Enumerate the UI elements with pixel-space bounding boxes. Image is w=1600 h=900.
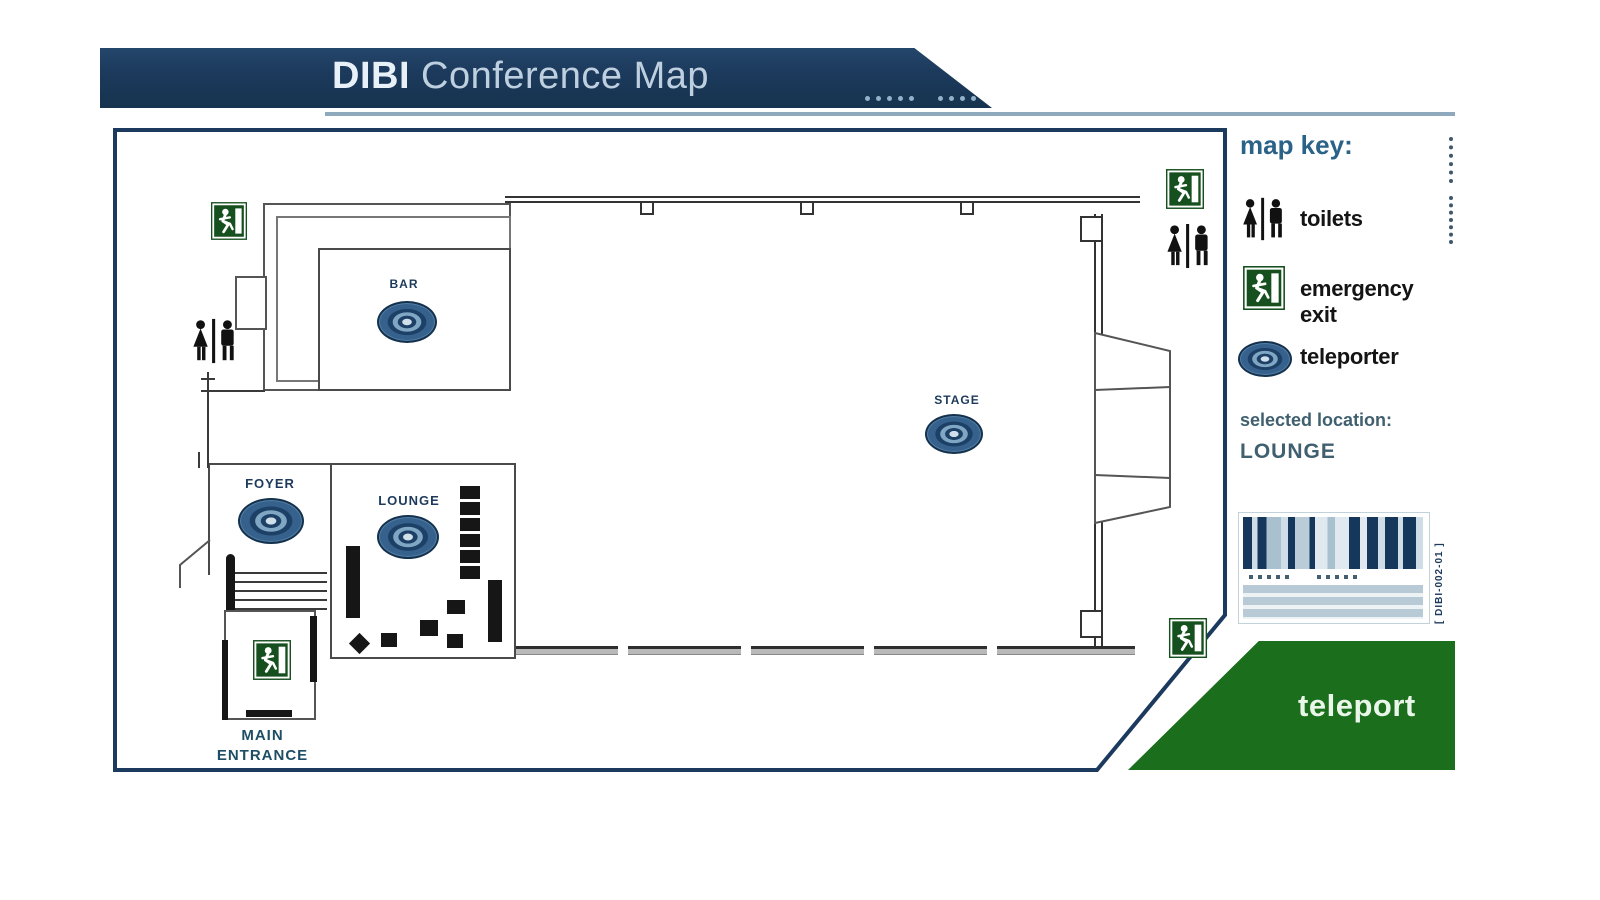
emergency-exit-icon [1168,618,1208,658]
room-label-stage: STAGE [922,393,992,407]
teleporter-foyer[interactable] [238,498,304,544]
wall-segment [751,646,864,655]
barcode-dots [1249,575,1289,579]
wall-segment [505,646,618,655]
furniture [488,580,502,642]
door-notch [960,203,974,215]
furniture [346,546,360,618]
furniture [460,518,480,531]
toilets-icon [1164,224,1212,268]
selected-location-label: selected location: [1240,410,1392,431]
room-label-foyer: FOYER [238,476,302,491]
emergency-exit-icon [253,640,291,680]
wall [201,390,265,392]
door-notch [640,203,654,215]
door-notch [800,203,814,215]
furniture [460,550,480,563]
wall [207,372,209,468]
teleporter-stage[interactable] [925,414,983,454]
emergency-exit-icon [211,200,247,242]
room-label-bar: BAR [374,277,434,291]
barcode-stripes [1243,585,1423,619]
wall-accent [222,640,228,720]
barcode-bars [1243,517,1423,569]
furniture [447,600,465,614]
map-key-heading: map key: [1240,130,1353,161]
barcode [1238,512,1430,624]
furniture [460,566,480,579]
wall-segment [874,646,987,655]
barcode-code: [ DIBI-002-01 ] [1434,512,1445,624]
wall-accent [310,616,317,682]
page: { "header": { "brand": "DIBI", "title": … [0,0,1600,900]
key-label-toilets: toilets [1300,206,1363,232]
wall [198,452,200,468]
stairs [230,572,327,614]
teleport-button-label: teleport [1259,641,1455,770]
door-frame [1080,610,1103,638]
wall-bay [1094,325,1179,530]
furniture [460,534,480,547]
furniture [420,620,438,636]
toilets-icon [190,318,238,364]
key-label-teleporter: teleporter [1300,344,1398,370]
emergency-exit-icon [1166,168,1204,210]
furniture [381,633,397,647]
stair-rail [226,554,235,616]
wall-chamfer [165,500,225,590]
toilets-icon [1240,197,1286,241]
wall [235,276,267,330]
decorative-dots [1449,137,1453,183]
door-frame [1080,216,1103,242]
room-label-lounge: LOUNGE [375,493,443,508]
wall-segment [628,646,741,655]
furniture [460,486,480,499]
furniture [460,502,480,515]
emergency-exit-icon [1243,266,1285,310]
barcode-dots [1317,575,1357,579]
wall-segment [997,646,1135,655]
furniture [447,634,463,648]
key-label-emergency-exit: emergency exit [1300,276,1413,328]
entrance-threshold [246,710,292,717]
room-label-main-entrance: MAIN ENTRANCE [205,726,320,767]
decorative-dots [1449,196,1453,244]
teleporter-icon [1238,341,1292,377]
teleporter-lounge[interactable] [377,515,439,559]
selected-location-value: LOUNGE [1240,440,1336,464]
wall [201,378,215,380]
teleporter-bar[interactable] [377,301,437,343]
wall-hall-top [505,196,1140,203]
